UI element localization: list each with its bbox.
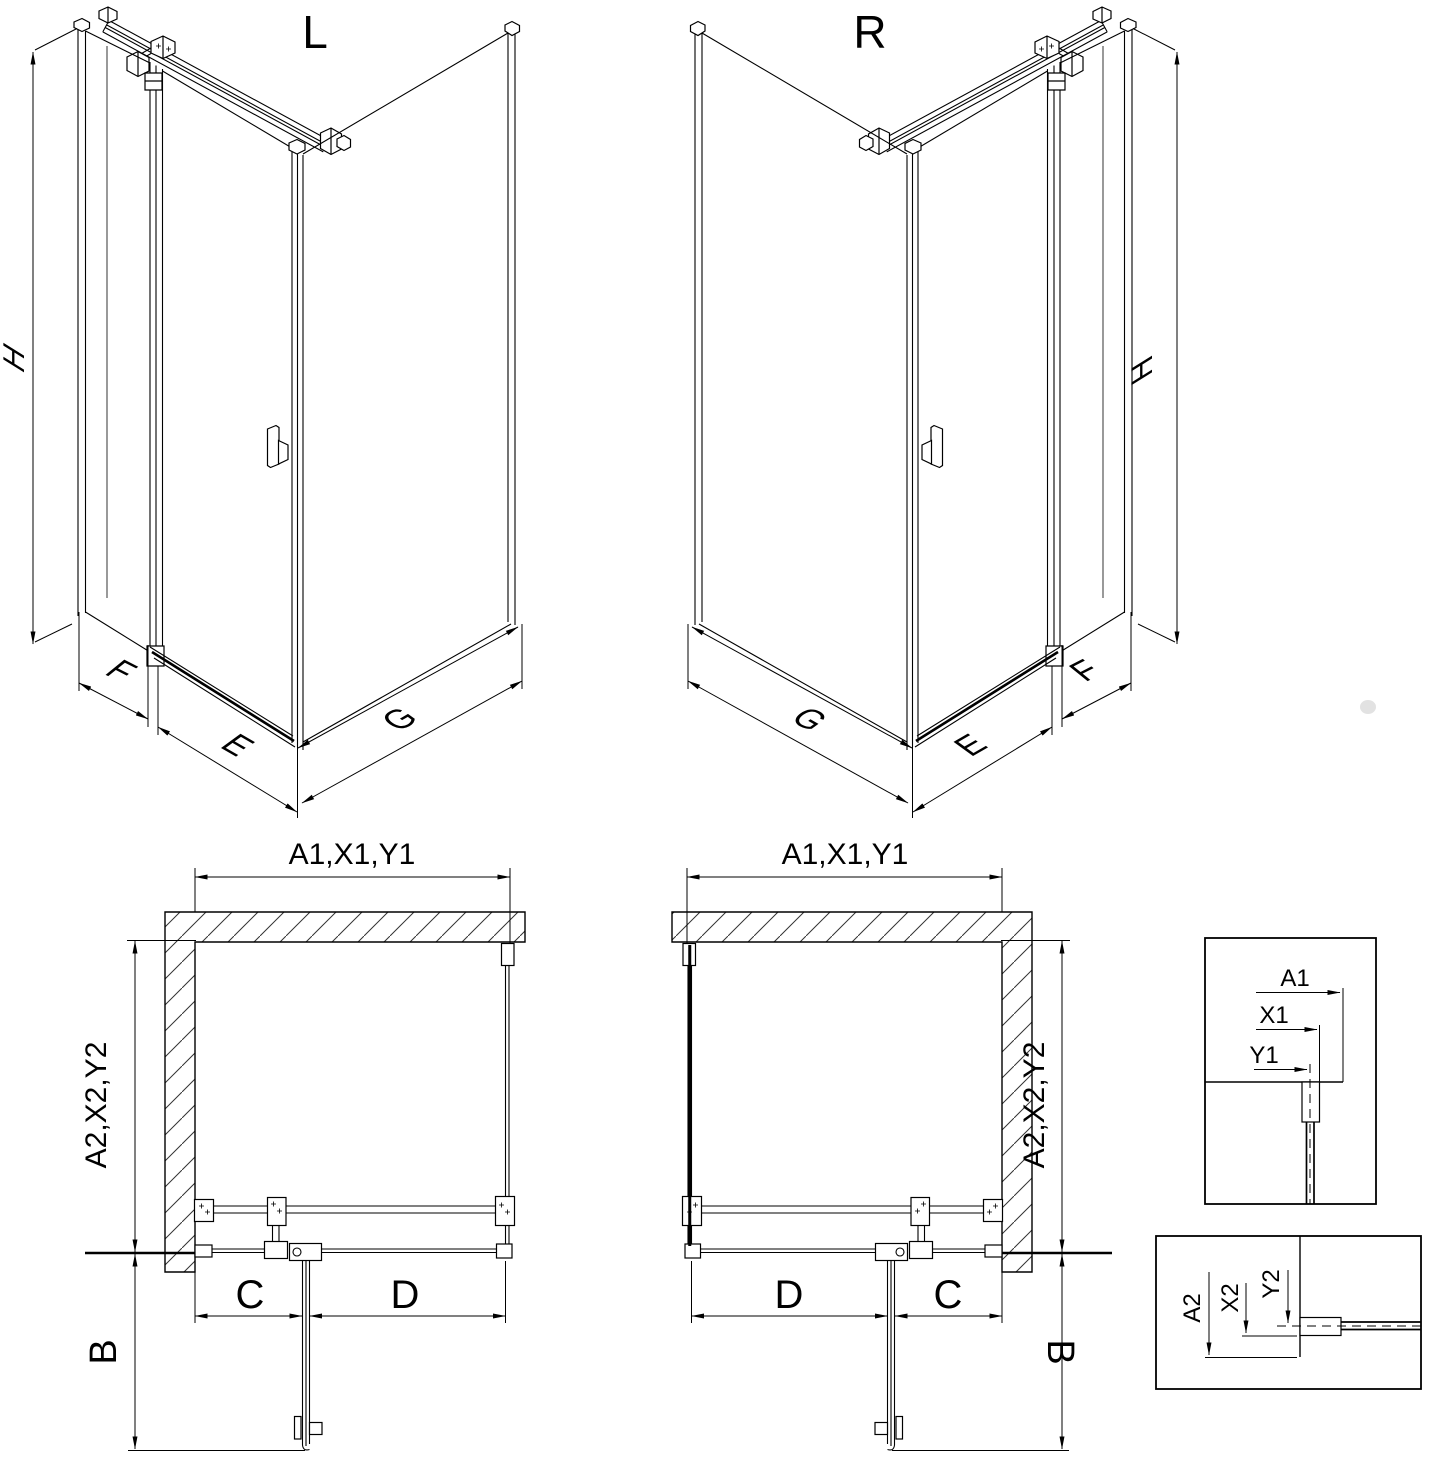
iso-left-title: L [302, 6, 328, 58]
dim-label-h-left: H [0, 336, 30, 379]
dim-label-f-right: F [1062, 655, 1109, 688]
plan-right-swing-label: B [1039, 1339, 1081, 1364]
dim-label-g-right: G [782, 702, 835, 737]
detail-a1-label: A1 [1280, 965, 1309, 992]
plan-left-depth-label: A2,X2,Y2 [80, 1042, 113, 1169]
detail-a2-label: A2 [1179, 1293, 1206, 1322]
plan-view-left [85, 868, 525, 1451]
plan-right-fixed-label: C [934, 1273, 963, 1317]
iso-view-left [33, 7, 522, 818]
technical-drawing-page: L H F E G R H F E G A1,X1,Y1 A2,X2,Y2 B … [0, 0, 1430, 1460]
wall-hatch-side-left-plan [165, 942, 195, 1272]
iso-view-right [688, 7, 1177, 818]
plan-left-swing-label: B [83, 1339, 125, 1364]
detail-x1-label: X1 [1259, 1002, 1288, 1029]
wall-hatch-top-right-plan [672, 912, 1032, 942]
dim-label-e-left: E [212, 729, 262, 762]
plan-right-depth-label: A2,X2,Y2 [1018, 1042, 1051, 1169]
plan-right-width-label: A1,X1,Y1 [782, 838, 909, 871]
detail-y2-label: Y2 [1258, 1269, 1285, 1298]
dim-label-h-right: H [1125, 349, 1159, 392]
dim-label-g-left: G [374, 702, 427, 737]
dim-label-f-left: F [97, 655, 144, 688]
shower-enclosure-diagram: L H F E G R H F E G A1,X1,Y1 A2,X2,Y2 B … [0, 0, 1430, 1460]
plan-left-width-label: A1,X1,Y1 [289, 838, 416, 871]
print-speck [1360, 700, 1376, 714]
plan-left-door-label: D [391, 1273, 420, 1317]
dim-label-e-right: E [946, 729, 996, 762]
plan-right-door-label: D [775, 1273, 804, 1317]
iso-right-title: R [853, 6, 886, 58]
detail-x2-label: X2 [1217, 1283, 1244, 1312]
detail-y1-label: Y1 [1249, 1042, 1278, 1069]
wall-hatch-top-left-plan [165, 912, 525, 942]
plan-left-fixed-label: C [236, 1273, 265, 1317]
